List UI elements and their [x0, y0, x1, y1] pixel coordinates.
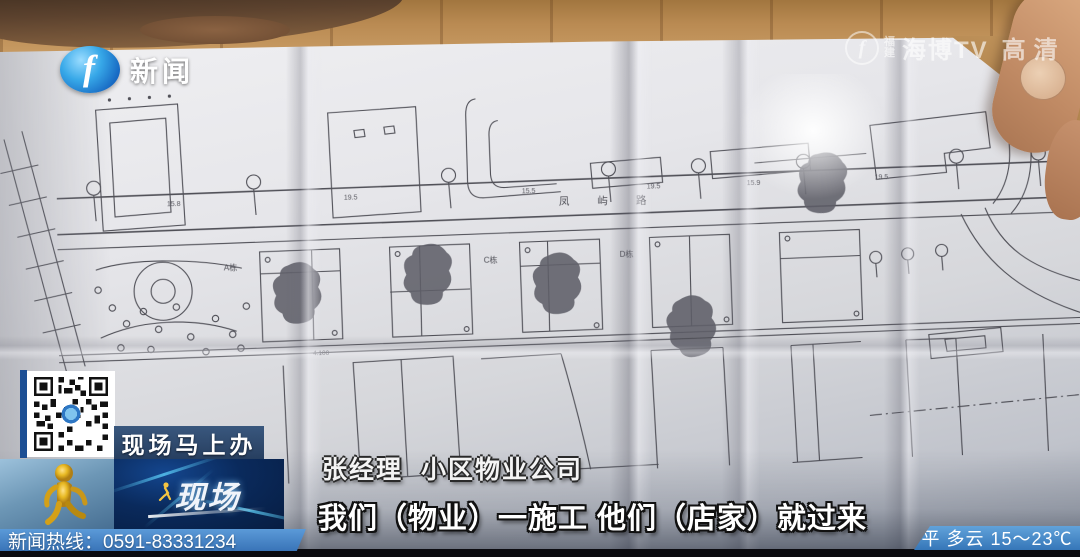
- residential-band: A栋 C栋 D栋: [56, 145, 1080, 369]
- weather-text: 平 多云 15～23℃: [921, 525, 1072, 551]
- program-logo-panel: 现场: [114, 459, 284, 529]
- gold-mascot-icon: [0, 459, 114, 529]
- channel-logo-sphere-icon: f: [60, 46, 120, 93]
- program-banner: 现场马上办: [114, 426, 264, 459]
- speaker-caption: 张经理小区物业公司: [322, 450, 583, 486]
- roundabout: [134, 262, 193, 321]
- light-glare: [738, 74, 888, 200]
- watermark-name: 海博TV: [902, 30, 989, 65]
- subtitle-text: 我们（物业）一施工 他们（店家）就过来: [318, 495, 867, 537]
- station-watermark: f 福建 海博TV 高清: [845, 30, 1066, 65]
- road-band: 15.8 19.5 15.5 19.5 15.9 19.5 凤屿路: [56, 145, 1079, 234]
- tv-frame: 15.8 19.5 15.5 19.5 15.9 19.5 凤屿路: [0, 0, 1080, 557]
- hotline-bar: 新闻热线：0591-83331234: [0, 529, 306, 551]
- finger: [140, 16, 290, 44]
- channel-logo: f 新闻: [60, 46, 194, 93]
- f-glyph-icon: f: [83, 50, 95, 86]
- program-banner-label: 现场马上办: [122, 426, 257, 460]
- weather-chip: 平 多云 15～23℃: [914, 526, 1080, 550]
- svg-text:19.5: 19.5: [344, 195, 358, 202]
- svg-text:15.8: 15.8: [167, 201, 181, 208]
- qr-code-pattern: [30, 374, 112, 454]
- watermark-region: 福建: [884, 37, 897, 59]
- fold-crease-horizontal: [0, 336, 1080, 360]
- mascot-panel: [0, 459, 114, 529]
- svg-text:15.5: 15.5: [522, 188, 536, 195]
- building-c-label: C栋: [484, 255, 498, 265]
- runner-icon: [158, 482, 172, 502]
- qr-accent-bar: [20, 370, 27, 458]
- building-a-label: A栋: [224, 262, 237, 272]
- speaker-affiliation: 小区物业公司: [421, 456, 583, 484]
- channel-logo-label: 新闻: [130, 50, 194, 90]
- watermark-quality: 高清: [1002, 30, 1066, 65]
- qr-code: [27, 371, 115, 457]
- watermark-f-icon: f: [845, 31, 879, 65]
- speaker-name: 张经理: [322, 456, 403, 484]
- hotline-text: 新闻热线：0591-83331234: [0, 527, 236, 554]
